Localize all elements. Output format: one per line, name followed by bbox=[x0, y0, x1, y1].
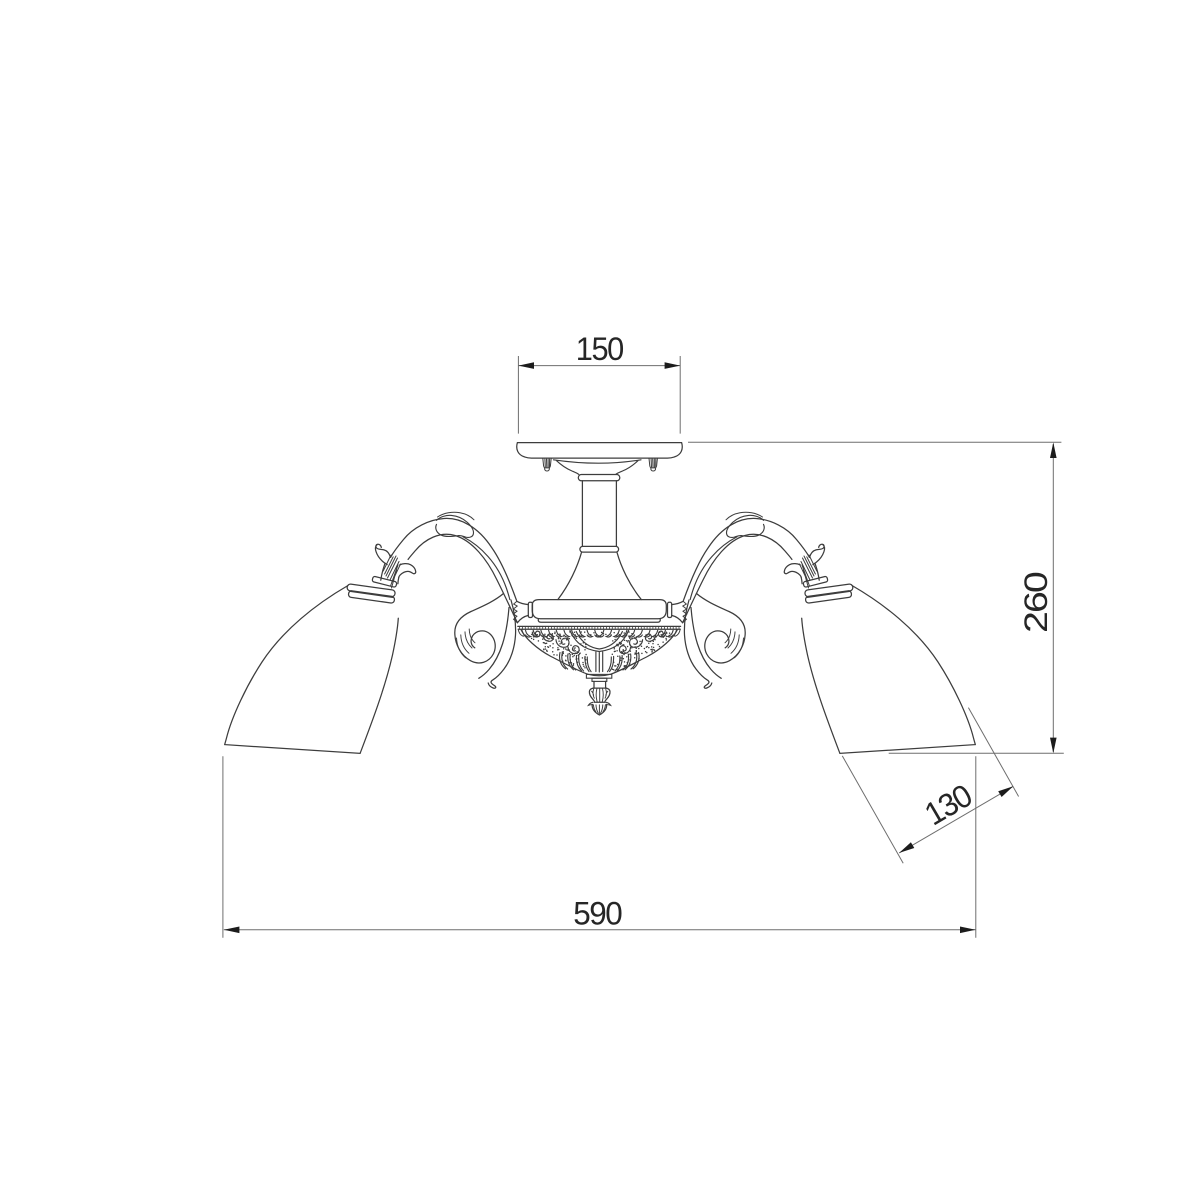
svg-text:150: 150 bbox=[576, 331, 624, 367]
svg-text:260: 260 bbox=[1018, 572, 1054, 633]
svg-text:590: 590 bbox=[573, 896, 622, 932]
